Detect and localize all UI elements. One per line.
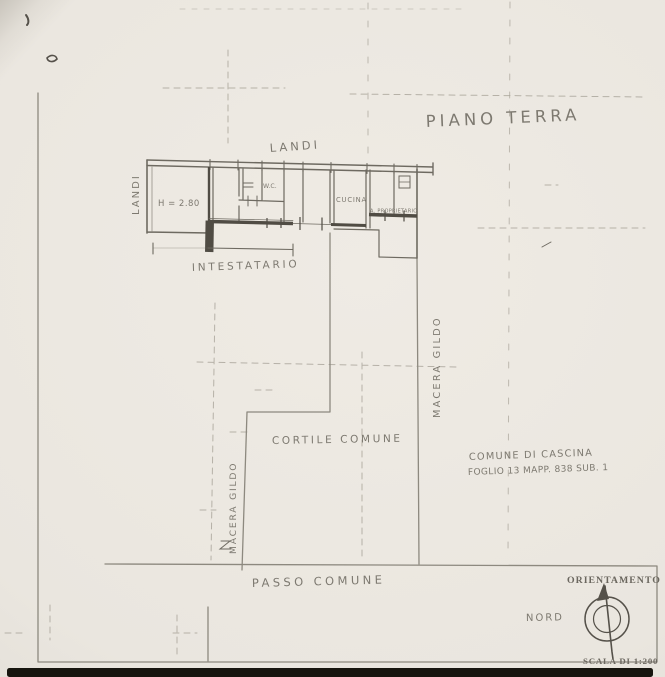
labels: PIANO TERRA LANDI LANDI H = 2.80 W.C. CU… xyxy=(131,105,661,666)
label-intestatario: INTESTATARIO xyxy=(192,258,300,274)
label-room-height: H = 2.80 xyxy=(158,199,200,209)
label-other-owner: A. PROPRIETARIO xyxy=(370,209,418,215)
wall-block xyxy=(205,220,214,252)
label-landi-top: LANDI xyxy=(269,138,320,155)
building-top-wall xyxy=(147,160,433,175)
label-orientamento: ORIENTAMENTO xyxy=(567,575,661,586)
label-cortile-comune: CORTILE COMUNE xyxy=(272,433,403,447)
pen-marks xyxy=(26,15,57,62)
courtyard-boundary-lines xyxy=(208,233,551,661)
scanned-floorplan-photo: PIANO TERRA LANDI LANDI H = 2.80 W.C. CU… xyxy=(0,0,665,677)
faint-grid-lines xyxy=(5,2,645,658)
building-bottom-line xyxy=(153,243,293,256)
label-wc: W.C. xyxy=(263,183,277,190)
label-nord: NORD xyxy=(526,612,564,624)
door-ticks xyxy=(243,183,257,206)
floorplan-drawing: PIANO TERRA LANDI LANDI H = 2.80 W.C. CU… xyxy=(0,0,665,677)
label-comune-di-cascina: COMUNE DI CASCINA xyxy=(469,448,594,463)
building-extension xyxy=(334,229,417,258)
label-passo-comune: PASSO COMUNE xyxy=(252,573,386,590)
compass xyxy=(585,583,629,659)
label-macera-gildo-right: MACERA GILDO xyxy=(432,316,443,418)
label-landi-left: LANDI xyxy=(131,174,142,215)
label-macera-gildo-left: MACERA GILDO xyxy=(228,462,239,554)
label-cucina: CUCINA xyxy=(336,196,367,204)
label-scala: SCALA DI 1:200 xyxy=(583,656,658,666)
building-fixtures xyxy=(399,176,410,188)
title-piano-terra: PIANO TERRA xyxy=(425,105,580,131)
photo-bottom-edge-band xyxy=(7,668,653,677)
label-foglio-mapp-sub: FOGLIO 13 MAPP. 838 SUB. 1 xyxy=(468,463,609,478)
